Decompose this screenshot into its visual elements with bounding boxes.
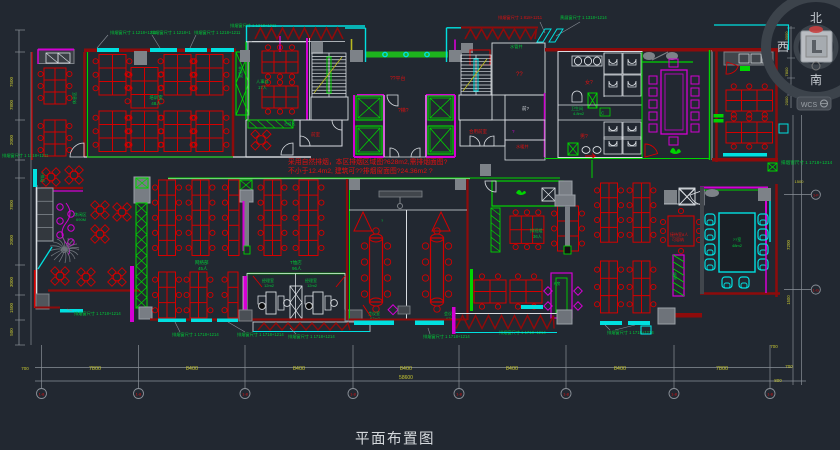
- svg-text:排烟窗尺寸 1 1218+1211: 排烟窗尺寸 1 1218+1211: [2, 152, 49, 159]
- svg-text:48m2: 48m2: [732, 243, 743, 248]
- svg-text:8400: 8400: [614, 366, 626, 372]
- svg-text:8400: 8400: [506, 366, 518, 372]
- svg-text:4.8m2: 4.8m2: [573, 111, 585, 116]
- svg-text:500: 500: [9, 328, 14, 336]
- svg-text:女?: 女?: [585, 79, 593, 86]
- svg-text:1-8: 1-8: [767, 392, 774, 397]
- svg-text:1500: 1500: [795, 179, 805, 184]
- svg-text:男?: 男?: [580, 134, 588, 140]
- svg-text:排班组: 排班组: [530, 227, 543, 234]
- svg-text:?梯?: ?梯?: [398, 107, 409, 114]
- svg-text:黄展窗尺寸 1 1318+1214: 黄展窗尺寸 1 1318+1214: [560, 14, 607, 21]
- svg-text:排烟窗尺寸 1 1218+1: 排烟窗尺寸 1 1218+1: [151, 29, 191, 36]
- svg-text:南: 南: [810, 72, 822, 87]
- svg-text:96人: 96人: [292, 266, 302, 271]
- svg-text:可容纳: 可容纳: [672, 236, 684, 242]
- svg-text:排烟窗尺寸 1 1718+1214: 排烟窗尺寸 1 1718+1214: [288, 333, 335, 340]
- svg-text:排烟窗尺寸 1 1718+1214: 排烟窗尺寸 1 1718+1214: [237, 331, 284, 338]
- svg-text:1-8: 1-8: [350, 392, 357, 397]
- svg-text:8400: 8400: [293, 366, 305, 372]
- svg-text:合用前室: 合用前室: [469, 128, 487, 135]
- svg-text:1-8: 1-8: [39, 392, 46, 397]
- svg-text:2000: 2000: [9, 134, 14, 145]
- svg-text:1-8: 1-8: [456, 392, 463, 397]
- svg-text:洽谈区: 洽谈区: [284, 121, 296, 126]
- svg-text:T恤店: T恤店: [290, 259, 302, 266]
- svg-text:休息区: 休息区: [71, 92, 77, 104]
- svg-text:前室: 前室: [311, 131, 320, 138]
- svg-text:宽慰井: 宽慰井: [237, 66, 243, 78]
- svg-text:西: 西: [777, 40, 789, 54]
- svg-text:1500: 1500: [786, 295, 791, 305]
- svg-text:排烟窗尺寸 1 1718+1214: 排烟窗尺寸 1 1718+1214: [423, 333, 470, 340]
- svg-text:1-G: 1-G: [813, 289, 819, 293]
- svg-text:8400: 8400: [400, 366, 412, 372]
- svg-text:7800: 7800: [9, 99, 14, 110]
- svg-text:58600: 58600: [399, 375, 413, 381]
- svg-text:700: 700: [770, 344, 778, 349]
- svg-text:36人: 36人: [533, 234, 543, 239]
- svg-text:12m2: 12m2: [264, 283, 275, 288]
- svg-text:7800: 7800: [784, 67, 789, 77]
- svg-text:人事部: 人事部: [256, 78, 269, 85]
- svg-text:排烟窗尺寸 1 1718+1214: 排烟窗尺寸 1 1718+1214: [74, 310, 121, 317]
- svg-text:P房: P房: [554, 280, 561, 286]
- svg-text:水暖井: 水暖井: [516, 143, 529, 150]
- svg-text:1-F: 1-F: [813, 194, 819, 198]
- svg-text:7200: 7200: [786, 239, 791, 250]
- svg-text:1-8: 1-8: [563, 392, 570, 397]
- svg-text:排烟窗尺寸 1 1718+1214: 排烟窗尺寸 1 1718+1214: [607, 329, 654, 336]
- svg-text:排烟窗尺寸 1 1718+1214: 排烟窗尺寸 1 1718+1214: [172, 331, 219, 338]
- svg-text:不小于12.4m2, 建筑可??排烟窗面图?24.36m2: 不小于12.4m2, 建筑可??排烟窗面图?24.36m2 ?: [288, 166, 433, 175]
- svg-text:1-8: 1-8: [671, 392, 678, 397]
- svg-text:北: 北: [810, 11, 822, 25]
- svg-text:1-8: 1-8: [242, 392, 249, 397]
- svg-text:690M: 690M: [76, 217, 86, 222]
- svg-text:采用自然排烟，本区排烟区域图?628m2,需排烟面图?: 采用自然排烟，本区排烟区域图?628m2,需排烟面图?: [288, 157, 448, 166]
- svg-text:700: 700: [21, 366, 29, 371]
- svg-text:7800: 7800: [9, 199, 14, 210]
- svg-text:排烟窗尺寸 1 818+1211: 排烟窗尺寸 1 818+1211: [498, 14, 543, 21]
- svg-text:12m2: 12m2: [307, 283, 318, 288]
- svg-text:WCS: WCS: [801, 102, 818, 109]
- svg-text:水管井: 水管井: [510, 43, 523, 50]
- svg-text:7800: 7800: [89, 366, 101, 372]
- svg-text:7800: 7800: [716, 366, 728, 372]
- svg-text:??室: ??室: [733, 236, 741, 242]
- svg-text:7500: 7500: [9, 76, 14, 87]
- svg-text:3000: 3000: [9, 276, 14, 287]
- svg-text:培训室: 培训室: [149, 94, 163, 101]
- svg-text:17人: 17人: [258, 85, 268, 90]
- svg-text:2000: 2000: [9, 234, 14, 245]
- svg-text:1500: 1500: [9, 302, 14, 313]
- svg-text:1-8: 1-8: [136, 392, 143, 397]
- svg-text:8400: 8400: [186, 366, 198, 372]
- svg-text:??平台: ??平台: [390, 75, 406, 82]
- svg-text:前?: 前?: [522, 105, 529, 112]
- svg-text:排烟窗尺寸 1 1218+1211: 排烟窗尺寸 1 1218+1211: [194, 29, 241, 36]
- svg-text:700: 700: [785, 364, 793, 369]
- svg-text:??: ??: [516, 72, 523, 78]
- svg-text:网络部: 网络部: [195, 259, 209, 266]
- svg-text:800: 800: [774, 378, 782, 383]
- svg-text:45人: 45人: [198, 266, 208, 271]
- svg-text:排烟窗尺寸 1 1218+1211: 排烟窗尺寸 1 1218+1211: [110, 29, 157, 36]
- svg-text:48人: 48人: [151, 101, 161, 106]
- svg-text:排烟窗尺寸 1 1718+1214: 排烟窗尺寸 1 1718+1214: [781, 159, 833, 166]
- svg-text:平面布置图: 平面布置图: [355, 431, 435, 448]
- svg-text:走廊: 走廊: [671, 272, 677, 280]
- svg-text:2000: 2000: [784, 96, 789, 106]
